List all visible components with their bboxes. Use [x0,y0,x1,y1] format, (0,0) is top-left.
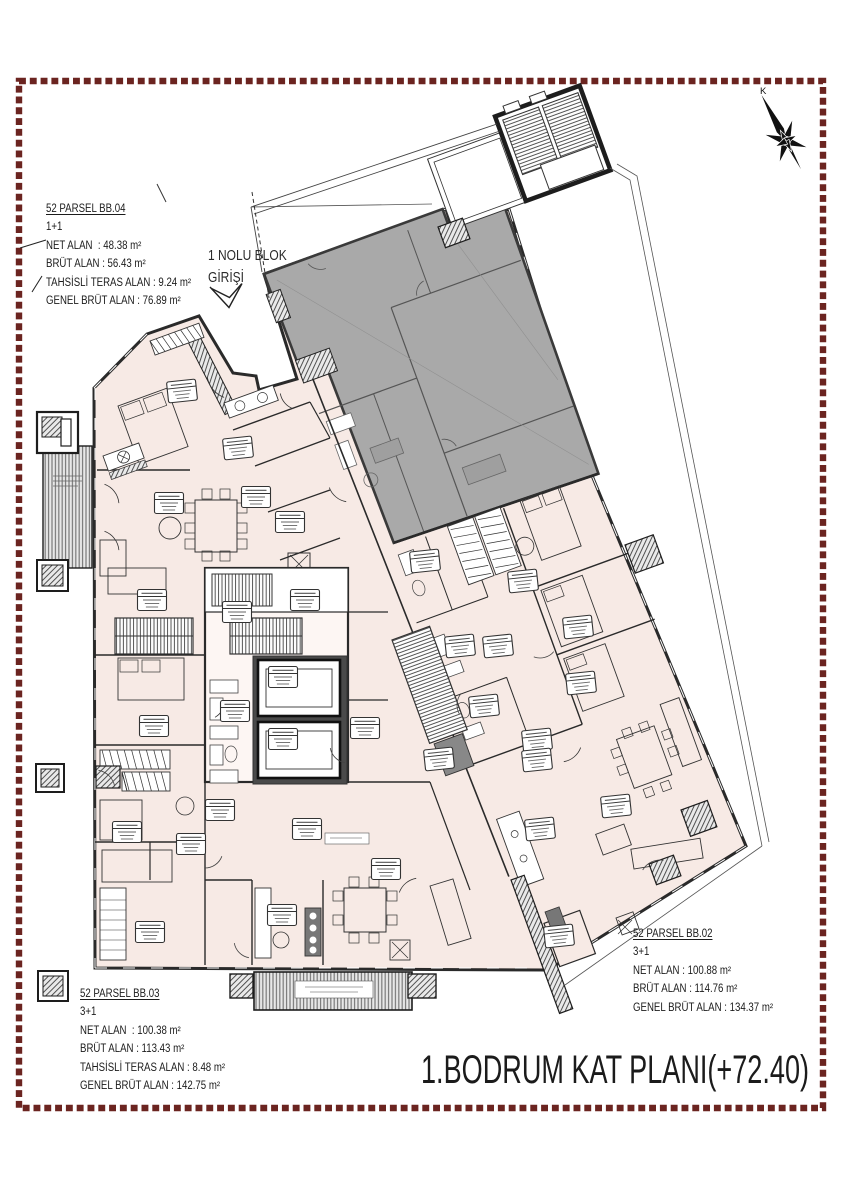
svg-text:K: K [760,86,767,97]
